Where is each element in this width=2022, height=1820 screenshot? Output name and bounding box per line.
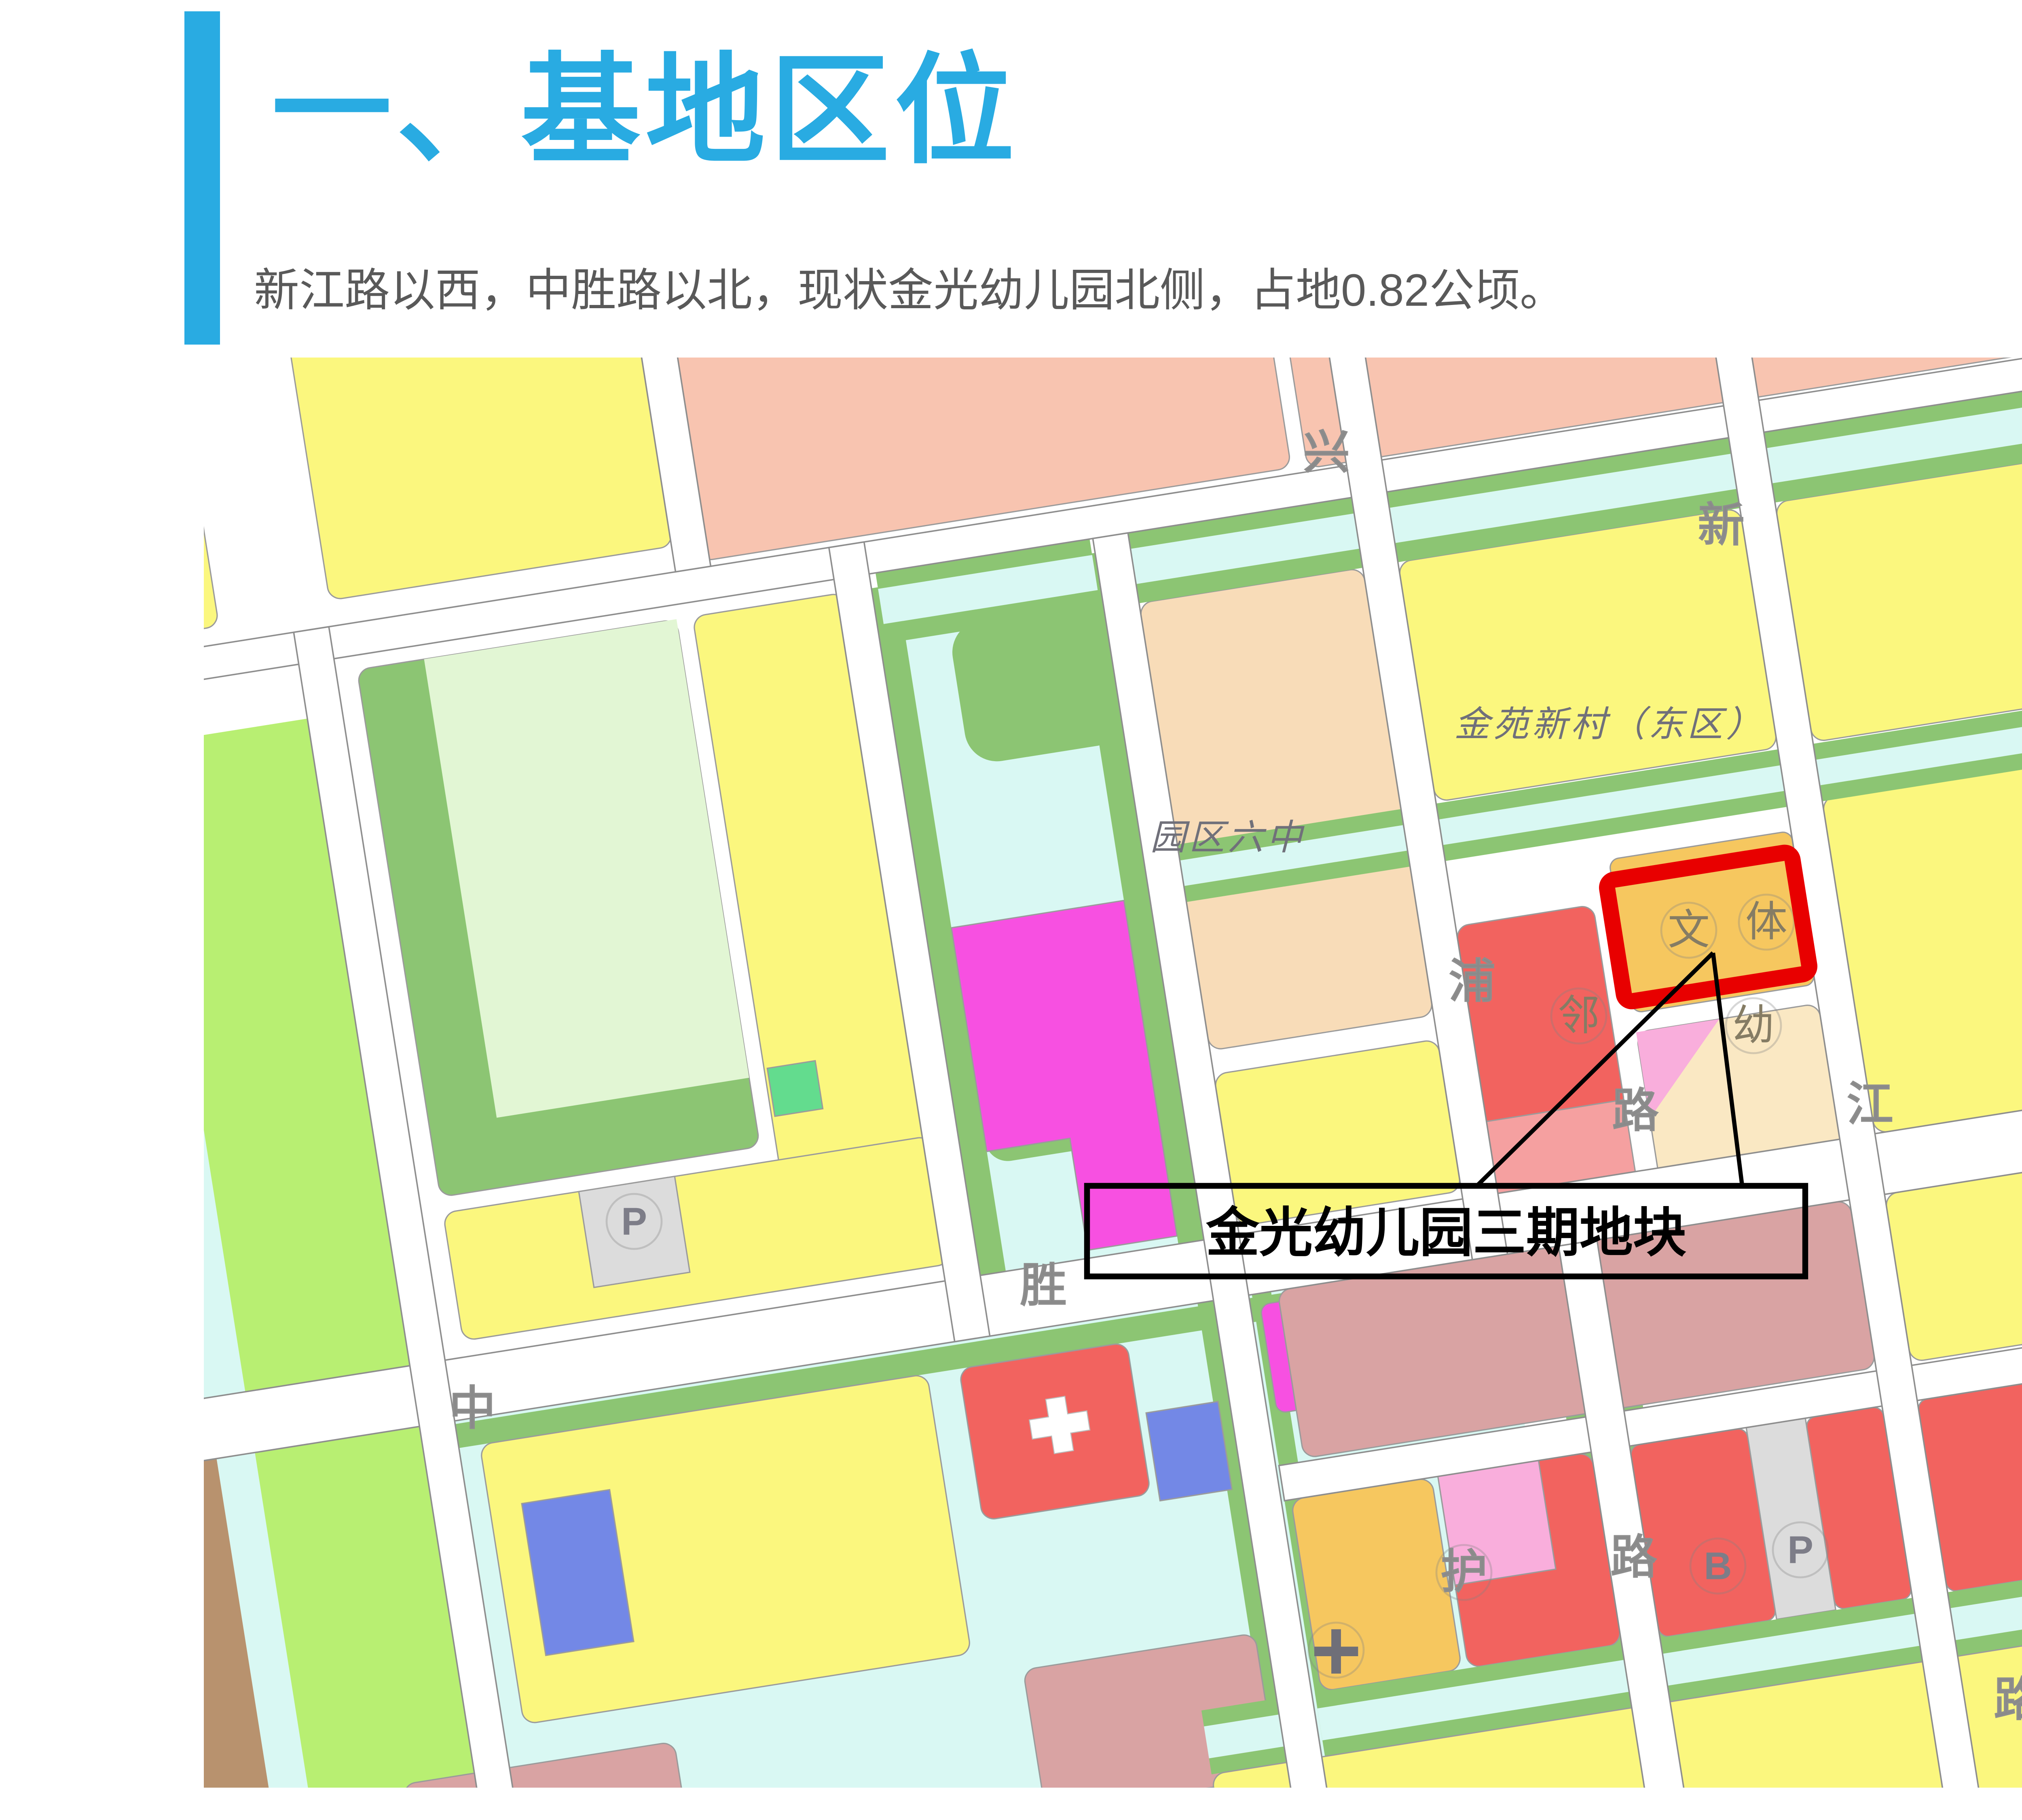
slide: 一、基地区位 新江路以西，中胜路以北，现状金光幼儿园北侧，占地0.82公顷。 xyxy=(0,0,2022,1820)
map-label: 浦 xyxy=(1449,956,1495,1008)
map-label: 江 xyxy=(1846,1079,1893,1131)
callout-text: 金光幼儿园三期地块 xyxy=(1206,1203,1686,1263)
map-label: B xyxy=(1704,1545,1732,1588)
map-label: 路 xyxy=(1994,1674,2022,1726)
site-location-map: 兴新浦路江胜中护路路BPP+金苑新村（东区）园区六中文体邻幼 金光幼儿园三期地块 xyxy=(204,358,2022,1788)
title-accent-bar xyxy=(184,11,220,345)
map-label: 兴 xyxy=(1303,427,1350,479)
page-title: 一、基地区位 xyxy=(272,45,1019,177)
map-label: P xyxy=(621,1200,647,1243)
map-label: 园区六中 xyxy=(1150,819,1305,858)
map-label: 路 xyxy=(1610,1532,1657,1584)
map-label: 幼 xyxy=(1732,1003,1775,1049)
map-label: 护 xyxy=(1440,1547,1487,1598)
map-label: 路 xyxy=(1612,1086,1659,1137)
map-label: 新 xyxy=(1698,500,1745,552)
map-label: + xyxy=(1311,1601,1362,1699)
map-label: 文 xyxy=(1668,907,1710,954)
map-image: 兴新浦路江胜中护路路BPP+金苑新村（东区）园区六中文体邻幼 金光幼儿园三期地块 xyxy=(204,358,2022,1788)
map-label: 体 xyxy=(1745,899,1787,946)
map-landuse-layer xyxy=(204,358,2022,1788)
map-label: P xyxy=(1787,1528,1813,1572)
map-label: 邻 xyxy=(1558,993,1600,1039)
map-label: 金苑新村（东区） xyxy=(1454,705,1765,745)
map-label: 中 xyxy=(449,1383,496,1435)
subtitle-text: 新江路以西，中胜路以北，现状金光幼儿园北侧，占地0.82公顷。 xyxy=(254,256,1565,320)
map-label: 胜 xyxy=(1020,1260,1067,1312)
